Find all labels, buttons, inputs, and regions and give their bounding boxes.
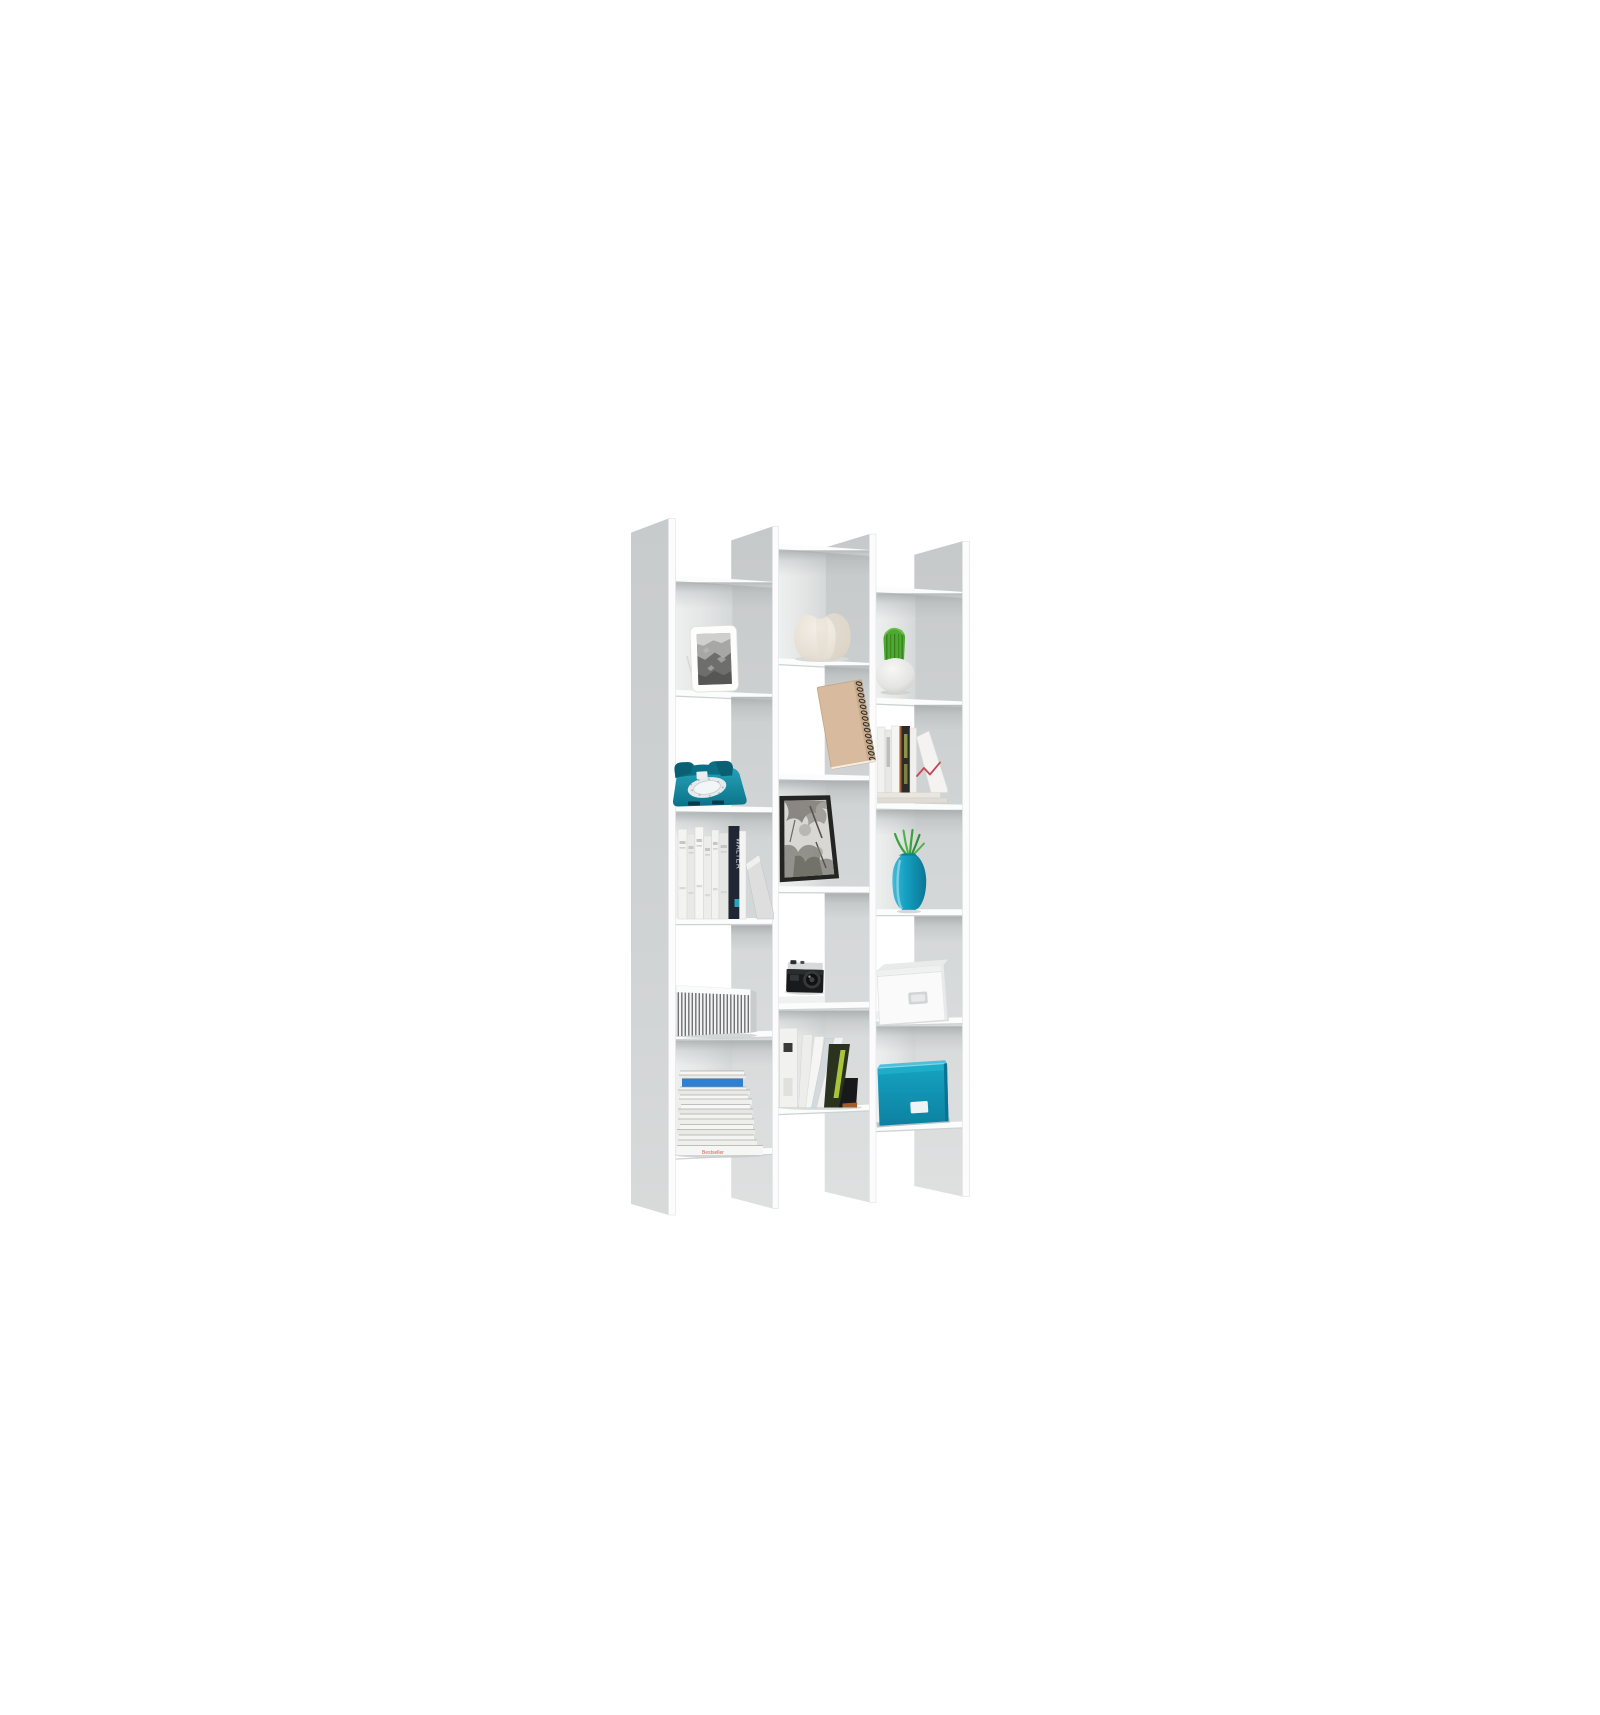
svg-text:Bestseller: Bestseller [702,1150,724,1156]
